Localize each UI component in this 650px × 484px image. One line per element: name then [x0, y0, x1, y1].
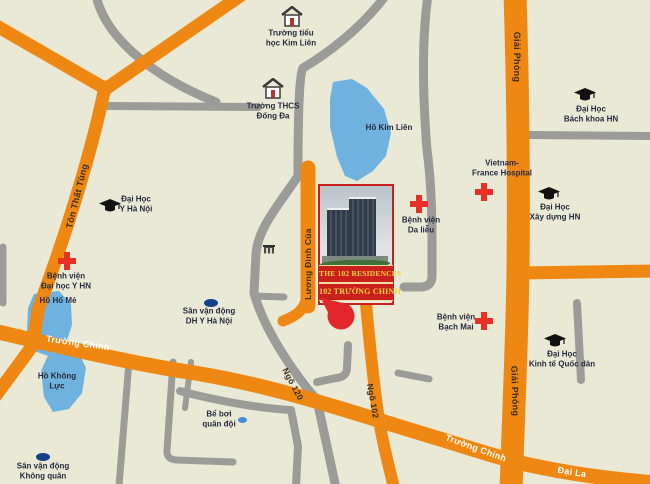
label-line: Đại Học: [120, 194, 153, 204]
label-line: Da liễu: [402, 225, 440, 235]
road-ngo-102: [364, 280, 394, 484]
label-uni-bach-khoa: Đại Học Bách khoa HN: [564, 104, 618, 123]
road-gray-elbow-small: [254, 296, 284, 297]
label-line: Không quân: [17, 471, 69, 481]
label-line: Xây dựng HN: [530, 212, 581, 222]
label-pool-quan-doi: Bể bơi quân đội: [202, 409, 235, 428]
map-canvas: Trường tiểu học Kim Liên Trường THCS Đốn…: [0, 0, 650, 484]
label-line: Sân vận động: [17, 461, 69, 471]
label-school-dong-da: Trường THCS Đống Đa: [247, 101, 300, 120]
label-line: Kinh tế Quốc dân: [529, 359, 595, 369]
label-line: Vietnam-: [472, 158, 532, 168]
road-gray-center-hook: [317, 345, 348, 382]
label-line: Bệnh viện: [437, 312, 475, 322]
road-orange-nw-branch-a: [0, 25, 106, 89]
label-line: quân đội: [202, 419, 235, 429]
label-line: Y Hà Nội: [120, 204, 153, 214]
label-line: Đại Học: [530, 202, 581, 212]
hospital-cross-icon: [409, 194, 429, 214]
label-line: học Kim Liên: [266, 38, 316, 48]
road-gray-east-vertical: [404, 0, 432, 287]
swimming-pool-icon: [238, 417, 247, 423]
label-school-kim-lien: Trường tiểu học Kim Liên: [266, 28, 316, 47]
hospital-cross-icon: [474, 311, 494, 331]
label-stadium-dh-y: Sân vận động DH Y Hà Nội: [183, 306, 235, 325]
label-line: Đại học Y HN: [41, 281, 91, 291]
label-line: France Hospital: [472, 168, 532, 178]
label-hosp-da-lieu: Bệnh viện Da liễu: [402, 215, 440, 234]
label-line: Bệnh viện: [41, 271, 91, 281]
label-lake-kim-lien: Hồ Kim Liên: [366, 123, 413, 133]
road-gray-south-stub-1: [119, 361, 129, 484]
label-line: Hồ Hố Mẻ: [40, 296, 77, 306]
road-gray-north-connector: [105, 106, 258, 107]
label-uni-kinh-te: Đại Học Kinh tế Quốc dân: [529, 349, 595, 368]
road-gray-bach-mai-stub: [398, 373, 429, 379]
road-label-giai-phong-south: Giải Phóng: [509, 366, 521, 417]
label-line: Đống Đa: [247, 111, 300, 121]
label-uni-xay-dung: Đại Học Xây dựng HN: [530, 202, 581, 221]
graduation-cap-icon: [99, 199, 121, 213]
stadium-icon: [36, 453, 50, 461]
temple-icon: [263, 244, 275, 254]
graduation-cap-icon: [544, 334, 566, 348]
road-gray-pool-loop: [180, 391, 298, 484]
label-line: Bạch Mai: [437, 322, 475, 332]
project-name-banner: THE 102 RESIDENCES: [319, 265, 393, 283]
road-gray-bach-khoa: [528, 135, 650, 136]
project-card: THE 102 RESIDENCES 102 TRƯỜNG CHINH: [318, 184, 394, 305]
road-label-giai-phong-north: Giải Phóng: [512, 32, 522, 83]
label-line: Sân vận động: [183, 306, 235, 316]
location-marker-icon: [315, 294, 360, 334]
label-line: Bách khoa HN: [564, 114, 618, 124]
label-line: Trường tiểu: [266, 28, 316, 38]
road-orange-east-branch: [520, 271, 650, 273]
hospital-cross-icon: [57, 251, 77, 271]
label-hosp-vietnam-france: Vietnam- France Hospital: [472, 158, 532, 177]
school-icon: [280, 6, 304, 27]
road-label-luong-dinh-cua: Lương Đình Của: [303, 228, 313, 300]
graduation-cap-icon: [538, 187, 560, 201]
label-lake-ho-me: Hồ Hố Mẻ: [40, 296, 77, 306]
label-line: Bệnh viện: [402, 215, 440, 225]
hospital-cross-icon: [474, 182, 494, 202]
label-line: Bể bơi: [202, 409, 235, 419]
label-line: Đại Học: [564, 104, 618, 114]
label-uni-y-hanoi: Đại Học Y Hà Nội: [120, 194, 153, 213]
label-line: DH Y Hà Nội: [183, 316, 235, 326]
label-hosp-bach-mai: Bệnh viện Bạch Mai: [437, 312, 475, 331]
label-line: Lực: [38, 381, 76, 391]
label-line: Hồ Không: [38, 371, 76, 381]
label-line: Đại Học: [529, 349, 595, 359]
label-line: Hồ Kim Liên: [366, 123, 413, 133]
label-stadium-khong-quan: Sân vận động Không quân: [17, 461, 69, 480]
label-lake-khong-luc: Hồ Không Lực: [38, 371, 76, 390]
graduation-cap-icon: [574, 88, 596, 102]
label-hosp-dai-hoc-y: Bệnh viện Đại học Y HN: [41, 271, 91, 290]
label-line: Trường THCS: [247, 101, 300, 111]
school-icon: [261, 78, 285, 99]
